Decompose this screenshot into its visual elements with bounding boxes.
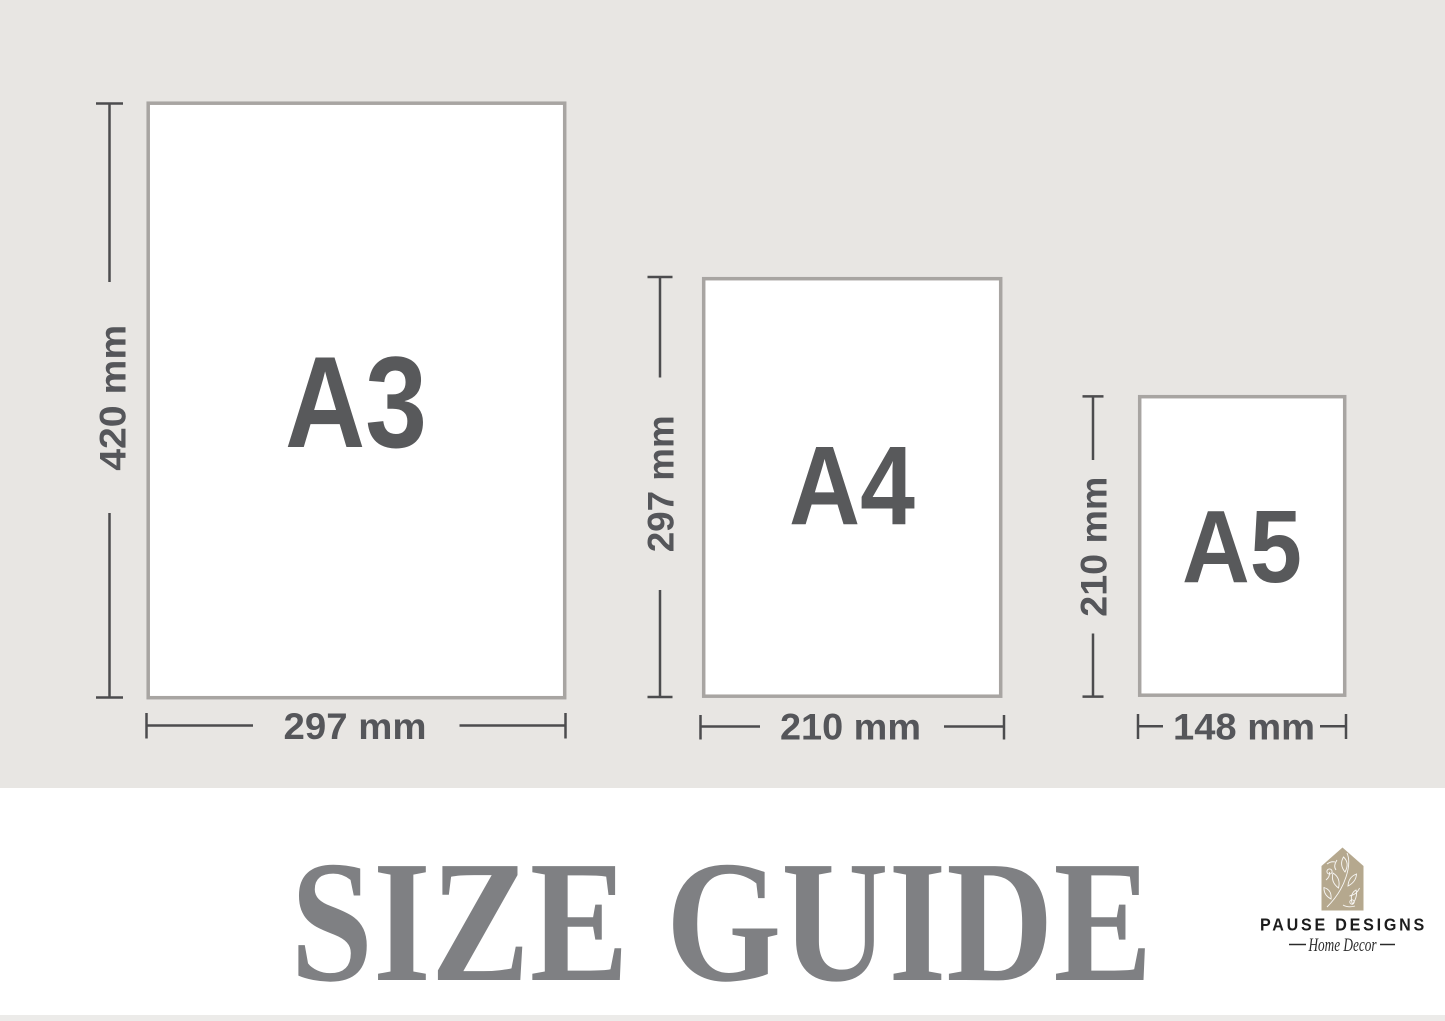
svg-text:PAUSE DESIGNS: PAUSE DESIGNS xyxy=(1260,915,1427,935)
svg-text:420 mm: 420 mm xyxy=(92,325,133,471)
svg-text:210 mm: 210 mm xyxy=(1074,477,1115,617)
svg-text:Home Decor: Home Decor xyxy=(1308,935,1377,956)
svg-text:SIZE GUIDE: SIZE GUIDE xyxy=(291,825,1153,1018)
svg-text:148 mm: 148 mm xyxy=(1173,706,1315,747)
svg-text:A3: A3 xyxy=(285,329,427,475)
svg-text:297 mm: 297 mm xyxy=(284,706,427,747)
svg-text:210 mm: 210 mm xyxy=(780,706,921,747)
svg-text:297 mm: 297 mm xyxy=(641,415,682,552)
svg-text:A4: A4 xyxy=(789,424,915,549)
svg-text:A5: A5 xyxy=(1182,489,1302,604)
